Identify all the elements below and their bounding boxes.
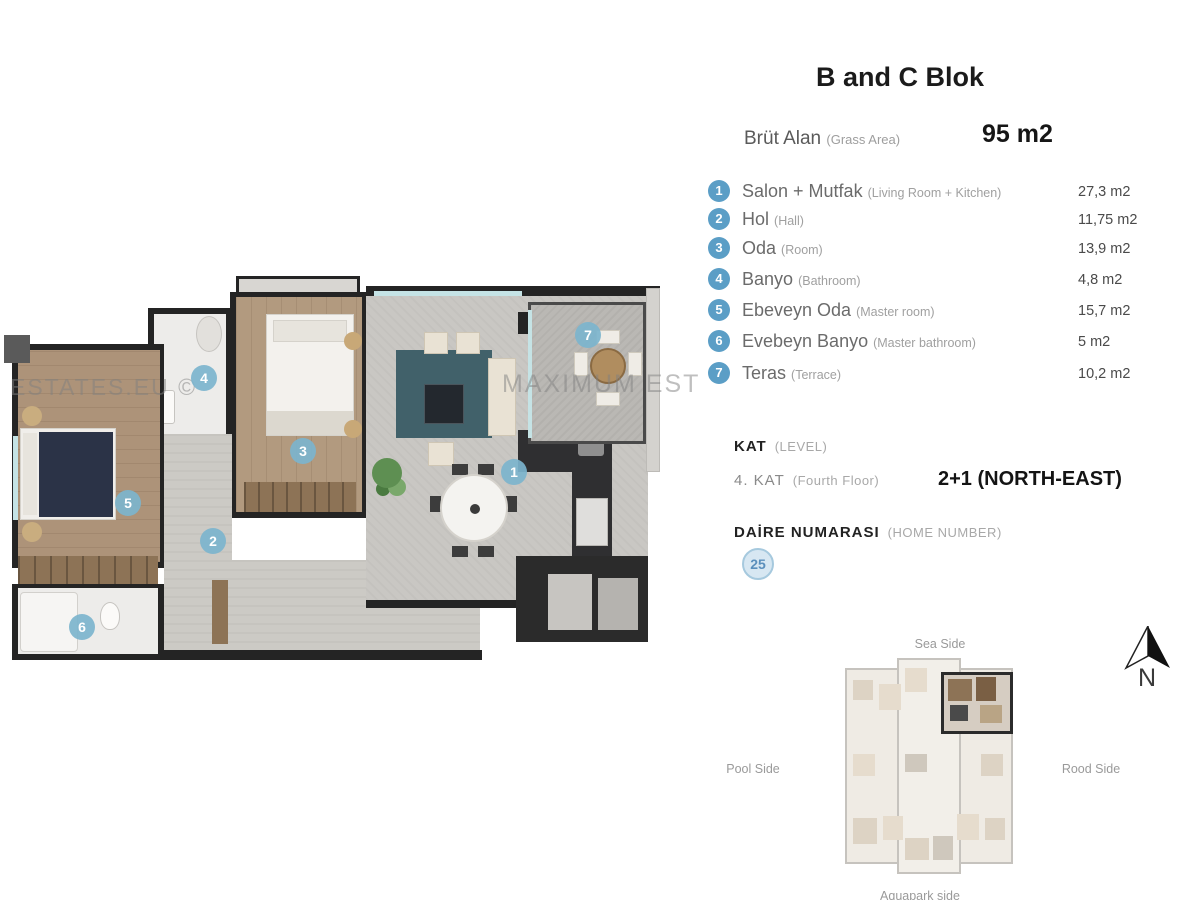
level-value-row: 4. KAT(Fourth Floor) [700,472,879,498]
plan-badge-6: 6 [69,614,95,640]
room-name-en: (Bathroom) [798,274,861,288]
entrance-step [598,578,638,630]
dining-chair [452,546,468,557]
legend-area: 15,7 m2 [1078,303,1130,319]
site-unit-room [950,705,968,721]
refrigerator [576,498,608,546]
exterior-ledge [4,335,30,363]
floor-plan: ESTATES.EU © MAXIMUM EST 1 2 3 4 5 6 7 [0,0,670,700]
dining-chair [478,464,494,475]
legend-row: 7 Teras (Terrace) 10,2 m2 [700,362,1170,388]
room-name: Oda [742,238,776,258]
gross-area-value: 95 m2 [982,120,1053,149]
sea-side-label: Sea Side [895,637,985,651]
home-number-label: DAİRE NUMARASI [734,524,880,541]
gross-area-label: Brüt Alan [744,128,821,149]
room-name: Salon + Mutfak [742,181,863,201]
legend-name: Ebeveyn Oda (Master room) [742,300,935,321]
level-label-en: (LEVEL) [775,439,828,454]
legend-row: 1 Salon + Mutfak (Living Room + Kitchen)… [700,180,1170,206]
window-glass [374,291,522,296]
nightstand [344,420,362,438]
room-name-en: (Living Room + Kitchen) [868,186,1002,200]
site-room [853,680,873,700]
legend-area: 27,3 m2 [1078,184,1130,200]
site-room [905,668,927,692]
site-room [957,814,979,840]
legend-row: 6 Evebeyn Banyo (Master bathroom) 5 m2 [700,330,1170,356]
hall-door [212,580,228,644]
bed-master [20,428,116,520]
watermark-left: ESTATES.EU © [10,374,197,401]
home-number-badge: 25 [742,548,774,580]
room-name-en: (Master room) [856,305,934,319]
legend-badge: 4 [708,268,730,290]
plan-badge-3: 3 [290,438,316,464]
dining-chair [478,546,494,557]
apartment-type: 2+1 (NORTH-EAST) [938,468,1122,491]
legend-row: 5 Ebeveyn Oda (Master room) 15,7 m2 [700,299,1170,325]
duvet [39,432,113,517]
room-name-en: (Room) [781,243,823,257]
pool-side-label: Pool Side [708,762,798,776]
pillows [273,320,347,342]
plan-badge-4: 4 [191,365,217,391]
site-room [905,754,927,772]
legend-name: Salon + Mutfak (Living Room + Kitchen) [742,181,1001,202]
legend-name: Oda (Room) [742,238,823,259]
road-side-label: Rood Side [1046,762,1136,776]
room-name-en: (Master bathroom) [873,336,976,350]
site-room [981,754,1003,776]
legend-badge: 6 [708,330,730,352]
site-unit-room [948,679,972,701]
gross-area-row: Brüt Alan (Grass Area) 95 m2 [700,118,1170,158]
nightstand [22,406,42,426]
site-room [905,838,929,860]
site-plan [845,658,1013,875]
legend-badge: 7 [708,362,730,384]
level-value: 4. KAT [734,472,785,489]
table-centerpiece [470,504,480,514]
legend-row: 4 Banyo (Bathroom) 4,8 m2 [700,268,1170,294]
plan-badge-7: 7 [575,322,601,348]
room-name: Evebeyn Banyo [742,331,868,351]
site-room [985,818,1005,840]
armchair [424,332,448,354]
window-glass [13,436,18,520]
plant [372,458,402,488]
site-room [853,754,875,776]
legend-name: Teras (Terrace) [742,363,841,384]
site-room [883,816,903,840]
brochure-page: ESTATES.EU © MAXIMUM EST 1 2 3 4 5 6 7 B… [0,0,1200,900]
tv-unit [424,384,464,424]
toilet [100,602,120,630]
site-highlighted-unit [941,672,1013,734]
level-label: KAT [734,438,767,455]
room-name-en: (Hall) [774,214,804,228]
gross-area-label-en: (Grass Area) [826,132,900,147]
wardrobe [244,482,356,512]
legend-badge: 1 [708,180,730,202]
page-title: B and C Blok [700,62,1100,93]
legend-area: 11,75 m2 [1078,212,1137,228]
bed [266,314,354,436]
armchair [456,332,480,354]
watermark-right: MAXIMUM EST [502,370,700,399]
legend-area: 13,9 m2 [1078,241,1130,257]
dining-table [440,474,508,542]
site-unit-room [980,705,1002,723]
home-number-header: DAİRE NUMARASI(HOME NUMBER) [700,524,1002,550]
site-room [933,836,953,860]
site-room [879,684,901,710]
legend-name: Hol (Hall) [742,209,804,230]
level-value-en: (Fourth Floor) [793,473,879,488]
room-name: Hol [742,209,769,229]
legend-row: 3 Oda (Room) 13,9 m2 [700,237,1170,263]
north-label: N [1138,664,1156,693]
room-name: Ebeveyn Oda [742,300,851,320]
legend-badge: 2 [708,208,730,230]
shower [196,316,222,352]
site-room [853,818,877,844]
legend-area: 10,2 m2 [1078,366,1130,382]
bottom-side-label: Aquapark side [875,889,965,900]
dining-chair [452,464,468,475]
legend-name: Evebeyn Banyo (Master bathroom) [742,331,976,352]
nightstand [22,522,42,542]
legend-badge: 5 [708,299,730,321]
legend-area: 4,8 m2 [1078,272,1122,288]
room-name: Teras [742,363,786,383]
legend-name: Banyo (Bathroom) [742,269,861,290]
armchair [428,442,454,466]
legend-badge: 3 [708,237,730,259]
bed-throw [267,411,353,435]
room-name: Banyo [742,269,793,289]
entrance-door [548,574,592,630]
level-header: KAT(LEVEL) [700,438,827,464]
nightstand [344,332,362,350]
plan-badge-1: 1 [501,459,527,485]
pillows [23,433,37,515]
site-unit-room [976,677,996,701]
plan-badge-2: 2 [200,528,226,554]
legend-row: 2 Hol (Hall) 11,75 m2 [700,208,1170,234]
legend-area: 5 m2 [1078,334,1110,350]
room-name-en: (Terrace) [791,368,841,382]
home-number-label-en: (HOME NUMBER) [888,525,1002,540]
wall [162,650,482,660]
plan-badge-5: 5 [115,490,141,516]
